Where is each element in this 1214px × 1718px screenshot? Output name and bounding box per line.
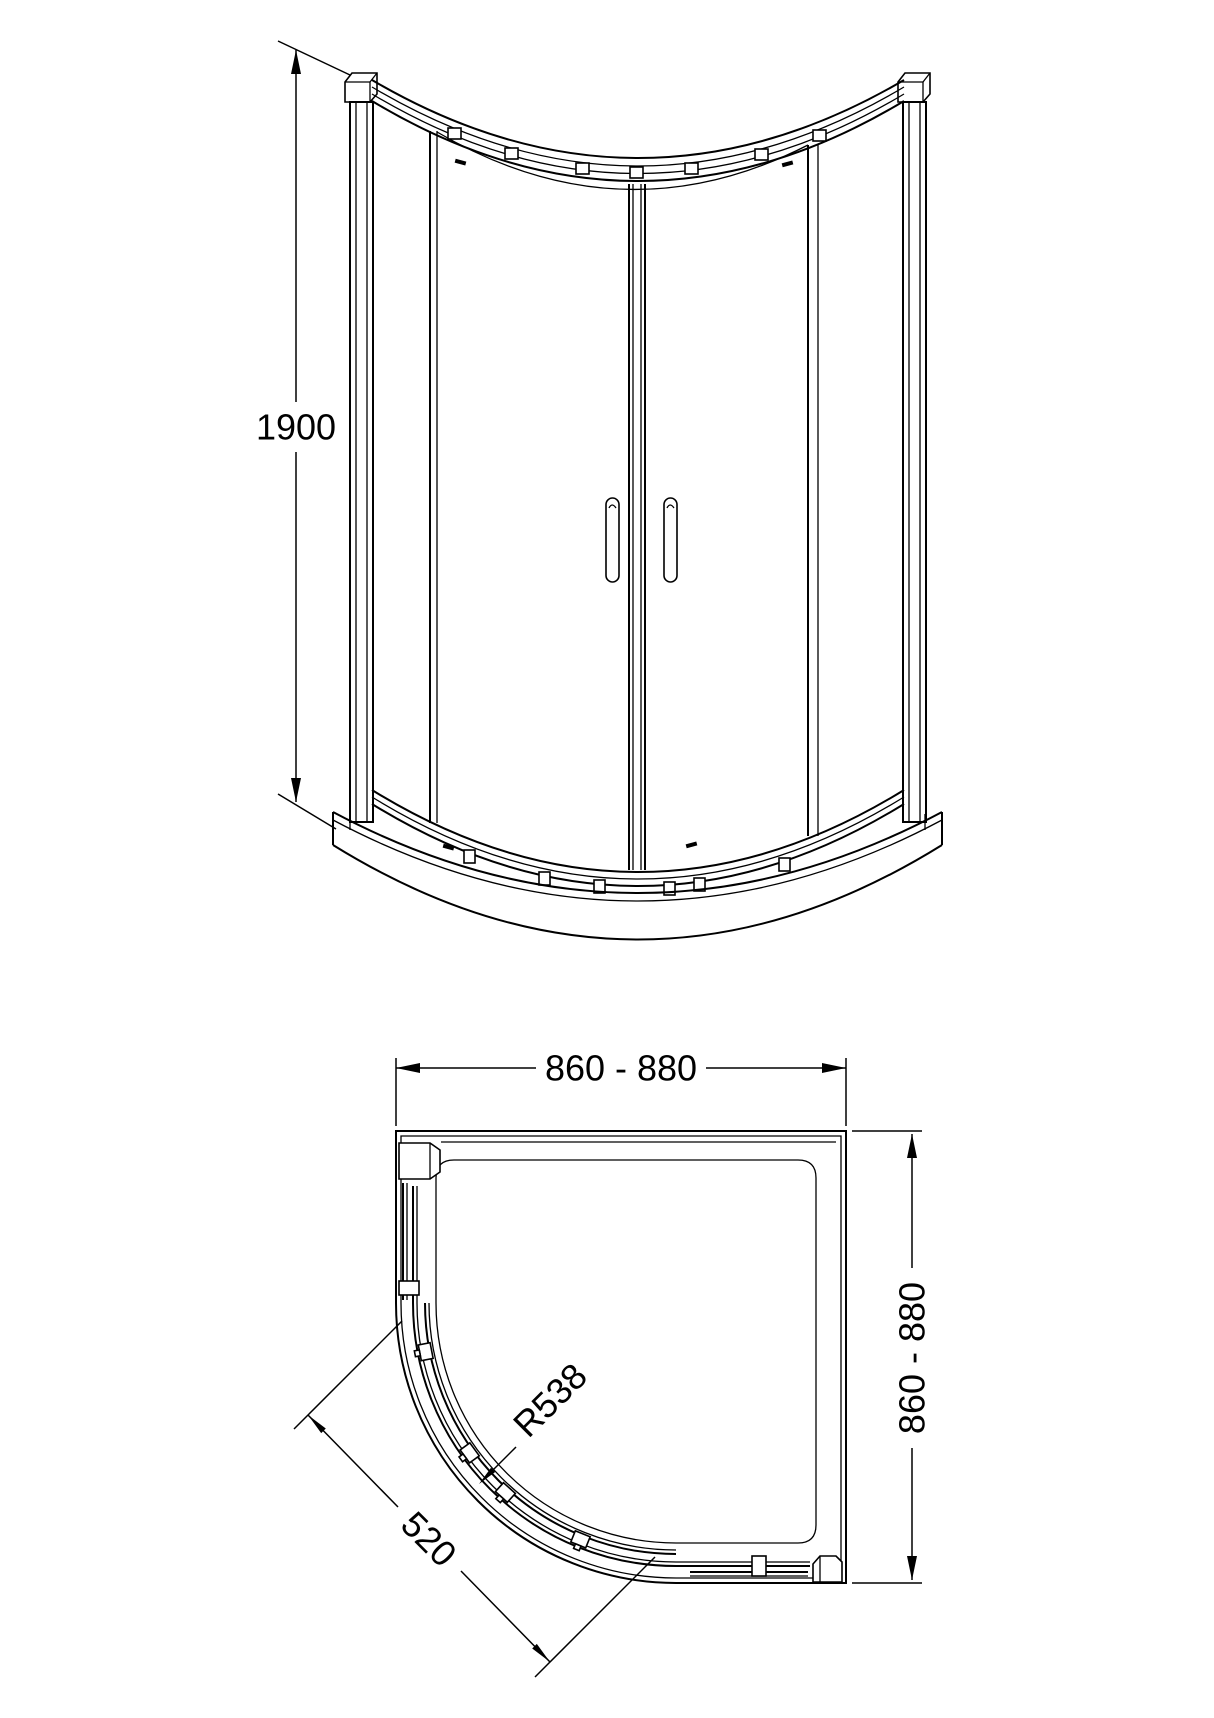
arrowhead-right [822, 1063, 846, 1073]
top-roller-brackets [448, 128, 826, 178]
door-handle-left [606, 498, 619, 582]
arrowhead-up [291, 50, 301, 74]
plan-view: 860 - 880 860 - 880 [294, 1048, 933, 1678]
front-elevation-view: 1900 [256, 41, 942, 940]
wall-bracket-top-left [399, 1143, 440, 1179]
door-handle-right [664, 498, 677, 582]
glass-clip-mark [686, 842, 698, 849]
glass-clip-mark [782, 161, 794, 168]
roller-bracket [755, 149, 768, 160]
arrowhead-down [907, 1556, 917, 1580]
bottom-rail-curve-2 [372, 797, 904, 879]
frame-post-left [345, 73, 377, 822]
extension-line-upper [294, 1321, 402, 1429]
bottom-rail [372, 790, 904, 895]
glass-clip-mark [455, 159, 467, 166]
curved-track-assembly [399, 1183, 810, 1576]
arrowhead-down [291, 778, 301, 802]
roller-bracket [685, 163, 698, 174]
tray-outer-edge [396, 1131, 846, 1583]
roller-bracket [813, 130, 826, 141]
width-dimension-label: 860 - 880 [545, 1048, 697, 1089]
shower-tray-elevation [333, 812, 942, 940]
arrowhead-left [396, 1063, 420, 1073]
width-dimension: 860 - 880 [396, 1048, 846, 1127]
height-dimension: 1900 [256, 41, 350, 829]
technical-drawing-canvas: 1900 [0, 0, 1214, 1718]
door-guide-clip [752, 1556, 766, 1576]
bottom-rail-curve-1 [372, 790, 904, 872]
radius-callout-label: R538 [505, 1355, 595, 1445]
bottom-rail-curve-3 [372, 804, 904, 886]
track-arc-inner2 [429, 1303, 676, 1550]
top-header-rail [372, 80, 904, 189]
roller-bracket [539, 872, 550, 885]
door-guide-clip [399, 1281, 419, 1295]
extension-line-bottom [278, 794, 336, 829]
height-dimension-label: 1900 [256, 407, 336, 448]
fixed-panel-edges [430, 131, 818, 836]
wall-bracket-bottom-right [813, 1556, 842, 1582]
tray-top-edge [333, 812, 942, 893]
extension-line-top [278, 41, 350, 75]
door-opening-dimension-label: 520 [393, 1503, 464, 1574]
track-arc-outer2 [417, 1303, 676, 1562]
plan-roller-bracket [569, 1531, 590, 1553]
extension-line-lower [535, 1557, 655, 1677]
depth-dimension-label: 860 - 880 [892, 1282, 933, 1434]
frame-post-right [898, 73, 930, 822]
arrowhead-upper [308, 1415, 326, 1433]
rail-curve-1 [372, 80, 904, 158]
radius-callout: R538 [479, 1355, 595, 1484]
roller-bracket [630, 167, 643, 178]
door-opening-dimension: 520 [294, 1321, 655, 1677]
roller-bracket [779, 858, 790, 871]
shower-enclosure-drawing: 1900 [0, 0, 1214, 1718]
sliding-doors [606, 184, 677, 870]
rail-curve-2 [372, 87, 904, 166]
roller-bracket [464, 850, 475, 863]
arrowhead-up [907, 1134, 917, 1158]
post-left-body [350, 102, 373, 822]
roller-bracket [505, 148, 518, 159]
arrowhead-lower [532, 1644, 550, 1662]
depth-dimension: 860 - 880 [852, 1131, 933, 1583]
roller-bracket [448, 128, 461, 139]
tray-outer-inner-line [401, 1136, 841, 1578]
post-right-body [903, 102, 926, 822]
roller-bracket [576, 163, 589, 174]
tray-plan-outline [396, 1131, 846, 1583]
